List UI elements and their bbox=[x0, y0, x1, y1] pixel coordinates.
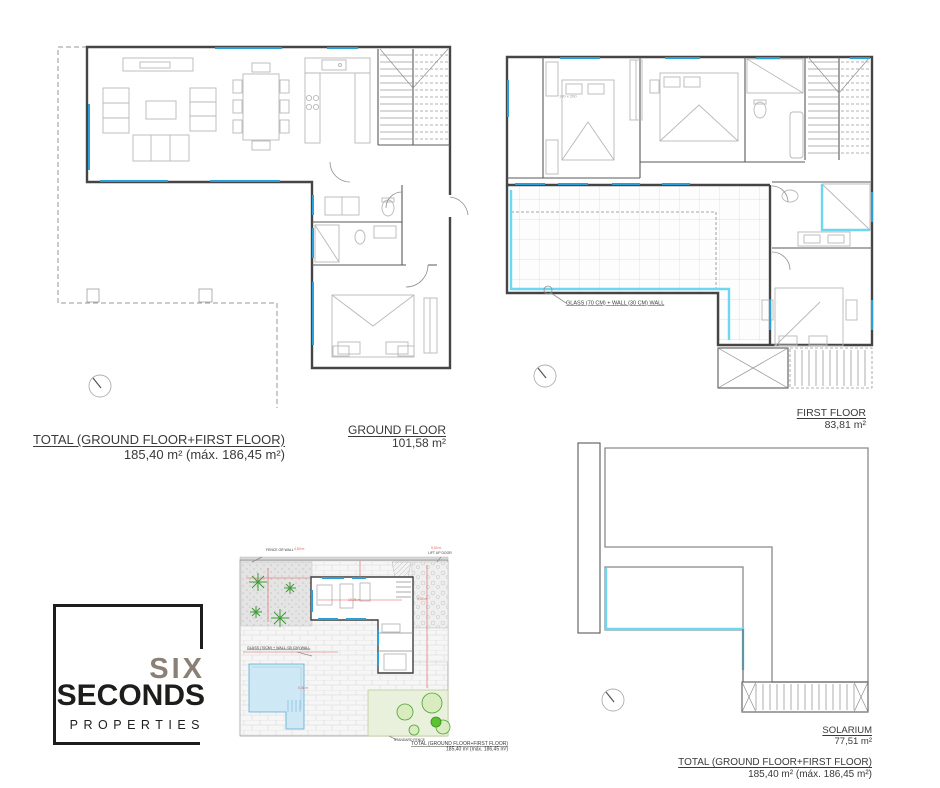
architectural-plan-sheet: TOTAL (GROUND FLOOR+FIRST FLOOR) 185,40 … bbox=[0, 0, 940, 788]
total-left-title: TOTAL (GROUND FLOOR+FIRST FLOOR) bbox=[33, 432, 285, 447]
site-dimension: 5,00 m bbox=[431, 546, 441, 550]
first-bedroom-2 bbox=[630, 60, 738, 141]
total-left-value: 185,40 m² (máx. 186,45 m²) bbox=[33, 447, 285, 462]
first-floor-area: 83,81 m² bbox=[756, 419, 866, 431]
solarium-area: 77,51 m² bbox=[762, 736, 872, 747]
solarium-stairs bbox=[742, 682, 868, 712]
site-gravel-area bbox=[241, 562, 312, 626]
pergola-post bbox=[199, 289, 212, 302]
site-path-strip bbox=[412, 628, 448, 662]
solarium-label: SOLARIUM 77,51 m² bbox=[762, 725, 872, 747]
ground-bedroom bbox=[332, 295, 437, 357]
first-bathroom-1 bbox=[747, 59, 803, 158]
first-bedroom-1 bbox=[546, 62, 614, 174]
ground-wc bbox=[325, 197, 394, 216]
site-dimension: 0,40 m bbox=[298, 686, 308, 690]
ground-kitchen bbox=[305, 58, 370, 143]
ground-floor-plan-drawing bbox=[58, 47, 468, 408]
logo-word-properties: PROPERTIES bbox=[47, 719, 205, 732]
total-right-value: 185,40 m² (máx. 186,45 m²) bbox=[642, 769, 872, 781]
lift-up-door-annotation: LIFT UP DOOR bbox=[428, 551, 452, 555]
total-area-label-right: TOTAL (GROUND FLOOR+FIRST FLOOR) 185,40 … bbox=[642, 757, 872, 781]
first-floor-label: FIRST FLOOR 83,81 m² bbox=[756, 407, 866, 431]
solarium-main-tiles bbox=[605, 448, 868, 682]
ground-floor-label: GROUND FLOOR 101,58 m² bbox=[336, 424, 446, 450]
total-right-title: TOTAL (GROUND FLOOR+FIRST FLOOR) bbox=[642, 757, 872, 769]
ground-doors bbox=[330, 162, 468, 287]
site-dimension: 10,05 m bbox=[348, 598, 360, 602]
site-total-value: 185,40 m² (máx. 186,45 m²) bbox=[396, 747, 508, 753]
site-top-fence bbox=[240, 557, 448, 561]
ground-stairs bbox=[378, 49, 450, 145]
pergola-post bbox=[87, 289, 99, 302]
first-bathroom-2 bbox=[772, 184, 870, 246]
standard-fence-annotation: STANDARD FENCE bbox=[394, 738, 425, 742]
site-dimension: 4,50 m bbox=[294, 547, 304, 551]
north-compass-icon bbox=[602, 689, 624, 711]
ground-bathroom bbox=[315, 225, 396, 262]
north-compass-icon bbox=[534, 365, 556, 387]
first-floor-title: FIRST FLOOR bbox=[756, 407, 866, 419]
site-dimension: 3,00 m bbox=[417, 597, 427, 601]
total-area-label-left: TOTAL (GROUND FLOOR+FIRST FLOOR) 185,40 … bbox=[33, 432, 285, 462]
glass-leader-line bbox=[551, 293, 566, 303]
solarium-title: SOLARIUM bbox=[762, 725, 872, 736]
bed-size-annotation: 180 x 200 bbox=[559, 94, 577, 99]
six-seconds-properties-logo: SIX SECONDS PROPERTIES bbox=[53, 604, 203, 745]
solarium-lower-tiles bbox=[605, 567, 743, 630]
solarium-glass-balustrade bbox=[606, 568, 743, 670]
logo-word-seconds: SECONDS bbox=[47, 681, 205, 711]
first-stairs bbox=[808, 57, 870, 160]
first-exterior-stairs bbox=[718, 348, 872, 388]
solarium-left-strip bbox=[578, 443, 600, 633]
ground-living-dining bbox=[103, 58, 289, 161]
site-pebble-area bbox=[412, 562, 448, 628]
ground-floor-area: 101,58 m² bbox=[336, 437, 446, 450]
first-floor-plan-drawing bbox=[507, 57, 872, 388]
glass-wall-site-annotation: GLASS (70CM) + WALL (30 CM) WALL bbox=[247, 646, 310, 650]
solarium-plan-drawing bbox=[578, 443, 868, 712]
glass-wall-annotation: GLASS (70 CM) + WALL (30 CM) WALL bbox=[566, 300, 664, 306]
ground-outer-walls bbox=[87, 47, 450, 368]
first-bedroom-3 bbox=[762, 252, 857, 346]
fence-annotation: FENCE OR WALL bbox=[266, 548, 294, 552]
north-compass-icon bbox=[89, 375, 111, 397]
logo-frame-right-segment bbox=[200, 604, 203, 649]
site-total-label: TOTAL (GROUND FLOOR+FIRST FLOOR) 185,40 … bbox=[396, 741, 508, 752]
